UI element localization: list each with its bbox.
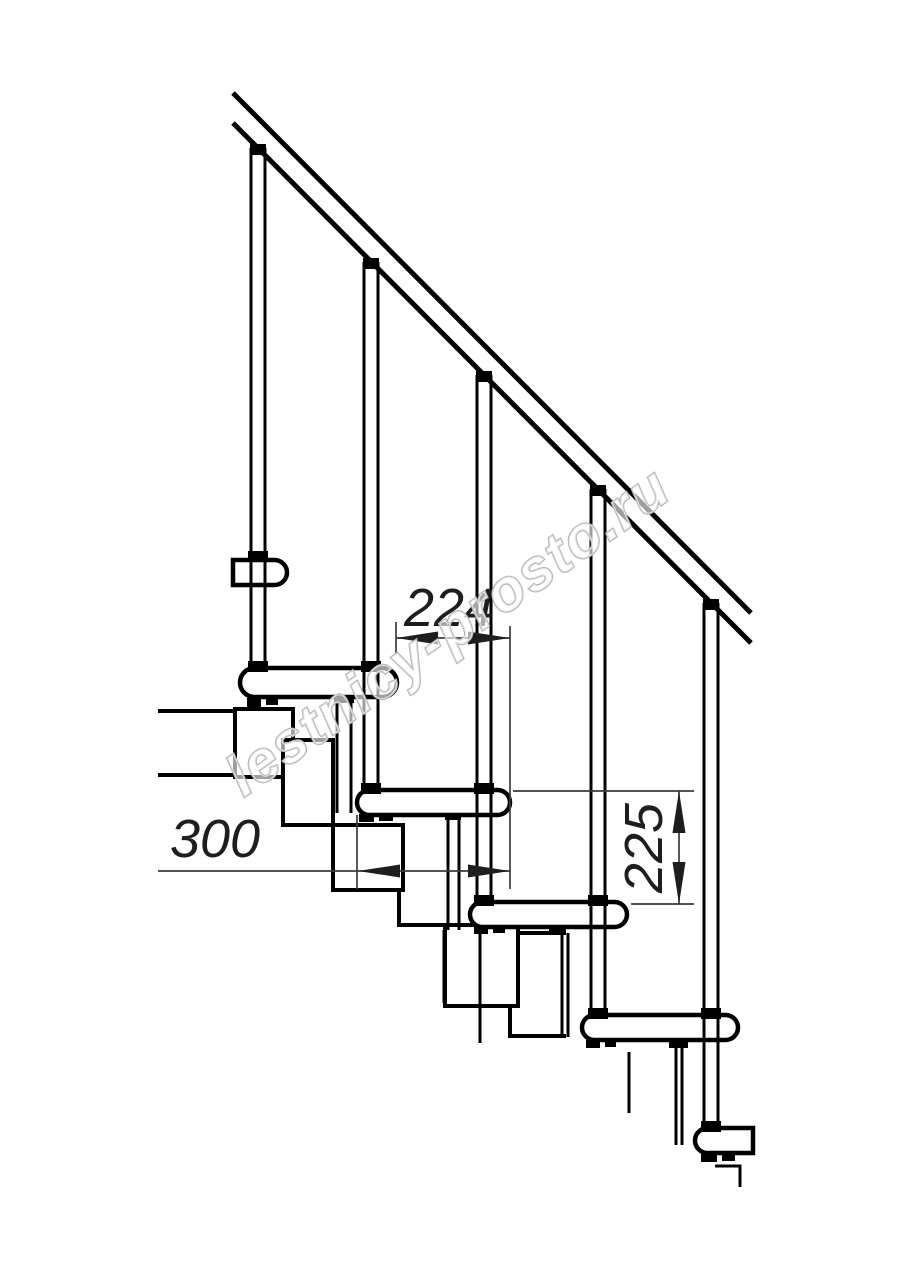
spine-module [333, 825, 403, 890]
bracket [701, 1153, 717, 1162]
arrowhead-right [468, 865, 510, 878]
bracket [605, 1040, 616, 1047]
arrowhead-up [673, 791, 686, 833]
support-struts [334, 695, 740, 1187]
baluster-collar [474, 783, 494, 794]
baluster-collar [588, 895, 608, 906]
bracket [586, 1040, 600, 1048]
baluster-collar [588, 1008, 608, 1019]
staircase-diagram: 224 300 225 lestnicy-prosto.ru [0, 0, 914, 1280]
spine-step [510, 1006, 566, 1036]
bracket [493, 926, 505, 933]
bracket [722, 1153, 735, 1161]
spine-step [399, 890, 445, 925]
baluster-collar [474, 895, 494, 906]
watermark-text: lestnicy-prosto.ru [214, 454, 682, 809]
arrowhead-down [673, 862, 686, 904]
dimension-300-label: 300 [170, 809, 260, 869]
dimension-225-label: 225 [614, 802, 674, 894]
baluster-collar [701, 1121, 721, 1132]
baluster-collar [248, 551, 268, 562]
baluster-collar [248, 661, 268, 672]
staircase-drawing-page: 224 300 225 lestnicy-prosto.ru [0, 0, 914, 1280]
baluster-collar [701, 1008, 721, 1019]
strut-cut [715, 1166, 740, 1187]
bracket [266, 698, 278, 705]
bracket [247, 698, 261, 707]
bracket [445, 813, 461, 820]
baluster-collar [361, 783, 381, 794]
bracket [549, 926, 566, 934]
bracket [474, 926, 488, 934]
bracket [359, 814, 374, 822]
bracket [379, 814, 393, 821]
bracket [669, 1040, 688, 1048]
tread-1 [233, 560, 287, 585]
